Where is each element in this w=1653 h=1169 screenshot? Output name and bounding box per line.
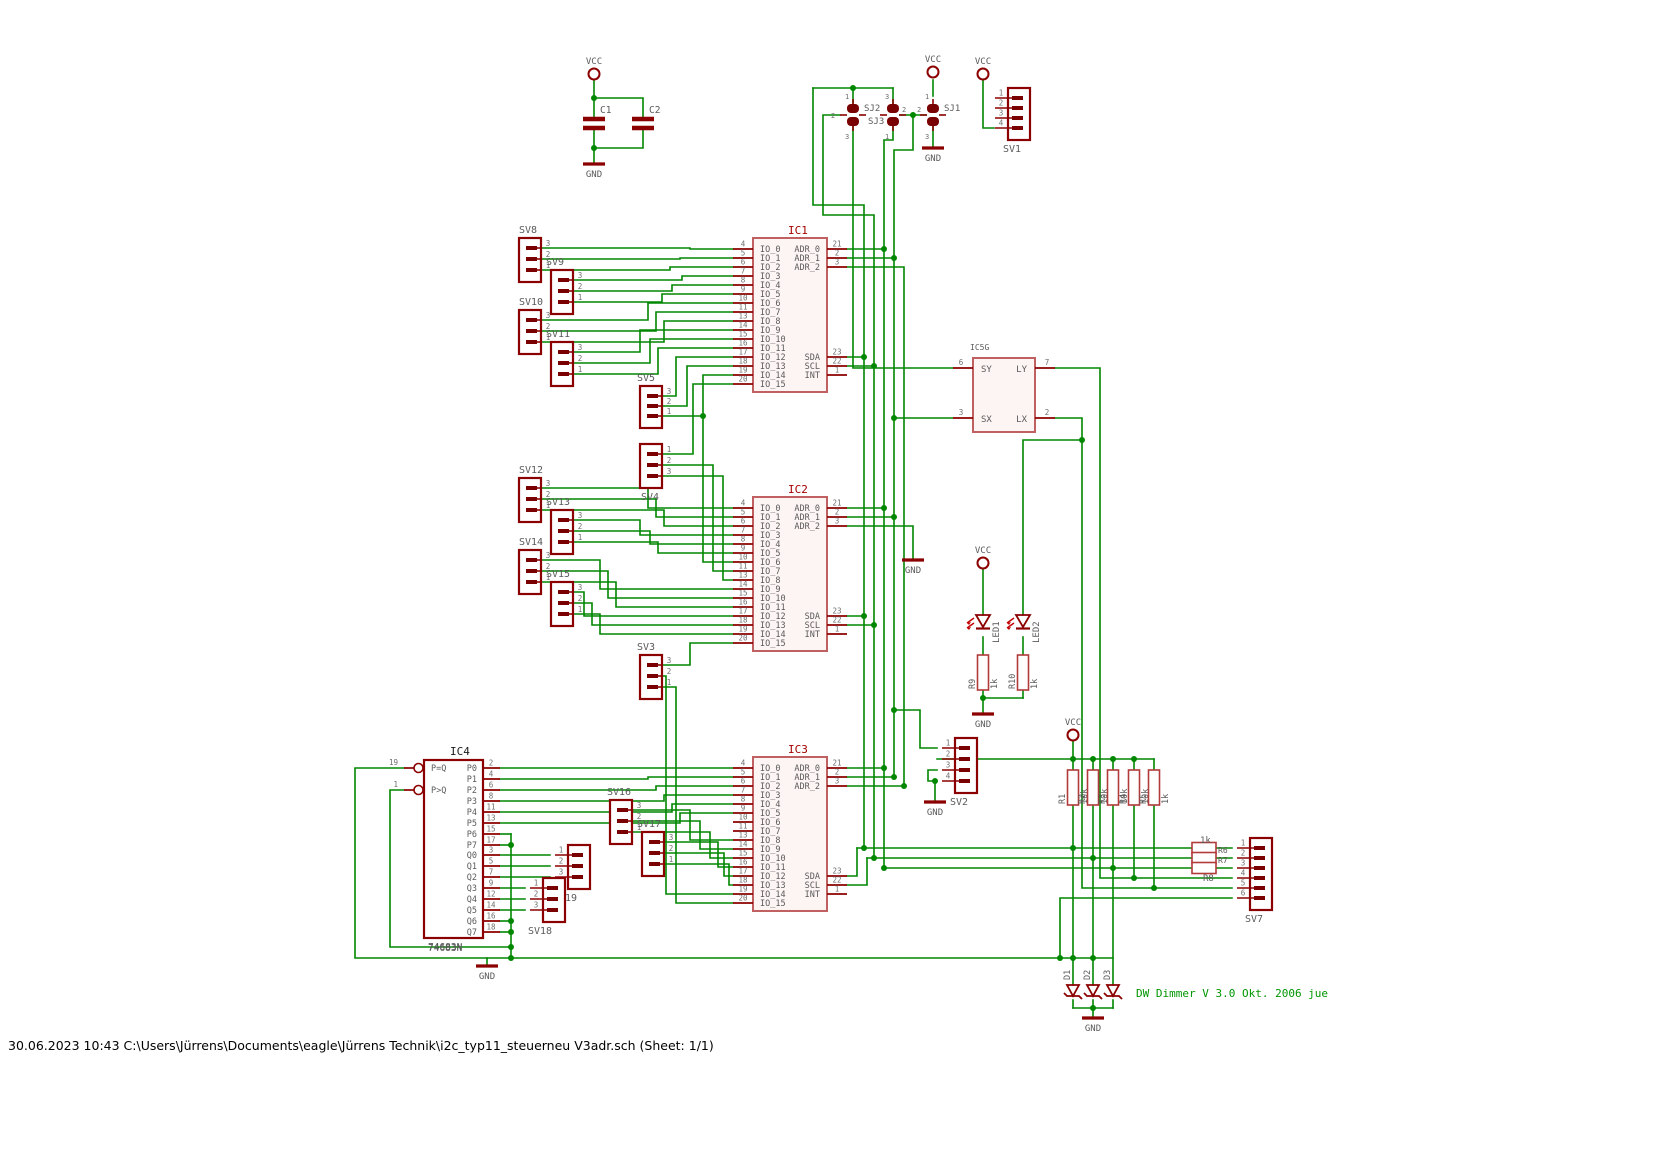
eagle-schematic-window: VCCVCCVCCVCCVCCGNDGNDGNDGNDGNDGNDGNDC1C2… — [0, 0, 1653, 1169]
svg-text:2: 2 — [902, 106, 906, 114]
svg-text:GND: GND — [927, 808, 943, 818]
svg-text:22: 22 — [832, 616, 841, 625]
capacitor-C2: C2 — [632, 105, 660, 128]
svg-text:R7: R7 — [1218, 856, 1228, 865]
svg-text:11: 11 — [738, 562, 747, 571]
gnd-symbol: GND — [1082, 1018, 1104, 1034]
svg-text:SV4: SV4 — [641, 492, 659, 503]
svg-text:SV5: SV5 — [637, 373, 655, 384]
svg-text:SY: SY — [981, 365, 992, 375]
svg-text:15: 15 — [738, 589, 747, 598]
svg-text:VCC: VCC — [586, 57, 602, 67]
svg-text:P3: P3 — [467, 797, 477, 807]
svg-text:1: 1 — [925, 93, 929, 101]
svg-text:SX: SX — [981, 415, 992, 425]
svg-text:2: 2 — [669, 844, 674, 853]
svg-text:8: 8 — [489, 792, 494, 801]
svg-text:3: 3 — [1241, 859, 1246, 868]
svg-text:1: 1 — [667, 678, 672, 687]
svg-text:12: 12 — [486, 890, 495, 899]
svg-text:SV15: SV15 — [546, 569, 570, 580]
svg-text:INT: INT — [805, 630, 820, 640]
vcc-symbol: VCC — [1065, 718, 1081, 741]
svg-text:18: 18 — [738, 876, 748, 885]
svg-text:1: 1 — [845, 93, 849, 101]
svg-text:VCC: VCC — [925, 55, 941, 65]
svg-text:IC1: IC1 — [788, 224, 808, 237]
svg-text:3: 3 — [835, 777, 840, 786]
svg-text:1: 1 — [578, 365, 583, 374]
svg-text:IO_15: IO_15 — [760, 899, 786, 909]
svg-text:13: 13 — [738, 831, 747, 840]
svg-text:1: 1 — [835, 885, 840, 894]
svg-text:ADR_2: ADR_2 — [794, 522, 820, 532]
svg-text:R1: R1 — [1058, 794, 1068, 804]
resistor-R10: R101k — [1008, 655, 1040, 690]
connector-SV12: 321SV12 — [519, 465, 550, 522]
svg-text:19: 19 — [738, 625, 747, 634]
gnd-symbol: GND — [476, 966, 498, 982]
svg-text:INT: INT — [805, 890, 820, 900]
svg-text:19: 19 — [738, 885, 747, 894]
connector-SV15: 321SV15 — [546, 569, 582, 626]
svg-text:11: 11 — [486, 803, 495, 812]
svg-text:3: 3 — [845, 133, 849, 141]
resistor-R5: R51k — [1139, 770, 1171, 805]
svg-text:P6: P6 — [467, 830, 477, 840]
svg-text:1k: 1k — [1030, 679, 1040, 689]
gnd-symbol: GND — [972, 714, 994, 730]
svg-text:SV9: SV9 — [546, 257, 564, 268]
svg-text:Q1: Q1 — [467, 862, 477, 872]
svg-text:8: 8 — [741, 795, 746, 804]
gnd-symbol: GND — [583, 164, 605, 180]
svg-text:9: 9 — [741, 804, 746, 813]
svg-text:3: 3 — [637, 801, 642, 810]
svg-text:14: 14 — [738, 840, 748, 849]
ic-IC2: IC24IO_05IO_16IO_27IO_38IO_49IO_510IO_61… — [733, 483, 847, 651]
ic-IC4: IC474683N19P=Q1P>Q2P04P16P28P311P413P515… — [389, 745, 500, 953]
connector-SV7: 123456SV7 — [1237, 838, 1272, 925]
svg-text:VCC: VCC — [975, 546, 991, 556]
connector-SV11: 321SV11 — [546, 329, 582, 386]
svg-text:2: 2 — [835, 768, 840, 777]
svg-text:21: 21 — [832, 499, 841, 508]
svg-text:16: 16 — [738, 598, 748, 607]
svg-text:15: 15 — [738, 849, 747, 858]
svg-text:R9: R9 — [968, 679, 978, 689]
jumper-SJ2 — [840, 99, 866, 131]
vcc-symbol: VCC — [925, 55, 941, 78]
svg-text:2: 2 — [667, 667, 672, 676]
svg-text:4: 4 — [946, 772, 951, 781]
svg-text:23: 23 — [832, 348, 841, 357]
svg-text:Q4: Q4 — [467, 895, 477, 905]
svg-text:15: 15 — [738, 330, 747, 339]
svg-text:P1: P1 — [467, 775, 477, 785]
connector-SV5: 321SV5 — [637, 373, 671, 428]
resistor-R8 — [1192, 863, 1216, 874]
svg-text:1: 1 — [999, 89, 1004, 98]
svg-text:13: 13 — [738, 312, 747, 321]
svg-text:1: 1 — [578, 533, 583, 542]
svg-text:6: 6 — [741, 777, 746, 786]
svg-text:19: 19 — [389, 758, 398, 767]
svg-text:3: 3 — [578, 583, 583, 592]
svg-text:8: 8 — [741, 276, 746, 285]
svg-text:9: 9 — [741, 285, 746, 294]
svg-text:3: 3 — [835, 517, 840, 526]
svg-text:17: 17 — [738, 607, 747, 616]
svg-text:4: 4 — [741, 240, 746, 249]
svg-text:SV12: SV12 — [519, 465, 543, 476]
svg-text:IC3: IC3 — [788, 743, 808, 756]
svg-text:GND: GND — [905, 566, 921, 576]
svg-text:23: 23 — [832, 607, 841, 616]
svg-text:14: 14 — [738, 321, 748, 330]
svg-text:2: 2 — [559, 857, 564, 866]
diode-D1: D1 — [1063, 970, 1082, 999]
ic-IC1: IC14IO_05IO_16IO_27IO_38IO_49IO_510IO_61… — [733, 224, 847, 392]
svg-text:3: 3 — [546, 479, 551, 488]
svg-text:6: 6 — [489, 781, 494, 790]
svg-text:16: 16 — [738, 339, 748, 348]
connector-SV17: 321SV17 — [637, 819, 673, 876]
svg-text:11: 11 — [738, 303, 747, 312]
svg-text:3: 3 — [667, 467, 672, 476]
svg-text:3: 3 — [546, 311, 551, 320]
svg-text:1: 1 — [885, 133, 889, 141]
svg-text:SV18: SV18 — [528, 926, 552, 937]
connector-SV16: 321SV16 — [607, 787, 641, 844]
svg-text:9: 9 — [741, 544, 746, 553]
connector-SV10: 321SV10 — [519, 297, 550, 354]
svg-text:4: 4 — [489, 770, 494, 779]
svg-text:D1: D1 — [1063, 970, 1073, 980]
svg-text:SV8: SV8 — [519, 225, 537, 236]
connector-SV18: 123SV18 — [528, 878, 565, 937]
svg-text:P>Q: P>Q — [431, 786, 446, 796]
svg-text:1k: 1k — [1200, 836, 1211, 846]
svg-text:2: 2 — [917, 106, 921, 114]
ic-IC5G: IC5G6SY3SX7LY2LX — [953, 343, 1055, 432]
svg-text:6: 6 — [1241, 889, 1246, 898]
svg-text:3: 3 — [489, 846, 494, 855]
capacitor-C1: C1 — [583, 105, 612, 128]
svg-text:2: 2 — [1045, 408, 1050, 417]
connector-SV1: 1234SV1 — [995, 88, 1030, 155]
svg-text:21: 21 — [832, 759, 841, 768]
svg-text:INT: INT — [805, 371, 820, 381]
svg-text:10: 10 — [738, 553, 748, 562]
svg-text:3: 3 — [959, 408, 964, 417]
svg-text:SV11: SV11 — [546, 329, 570, 340]
connector-SV14: 321SV14 — [519, 537, 550, 594]
diode-D3: D3 — [1103, 970, 1122, 999]
svg-text:P2: P2 — [467, 786, 477, 796]
svg-text:IO_15: IO_15 — [760, 380, 786, 390]
svg-text:7: 7 — [489, 868, 494, 877]
svg-text:SV1: SV1 — [1003, 144, 1021, 155]
svg-text:R8: R8 — [1203, 874, 1214, 884]
resistor-R9: R91k — [968, 655, 1000, 690]
svg-text:1: 1 — [835, 625, 840, 634]
svg-text:20: 20 — [738, 894, 748, 903]
jumper-SJ1 — [920, 99, 946, 131]
vcc-symbol: VCC — [586, 57, 602, 80]
status-bar: 30.06.2023 10:43 C:\Users\Jürrens\Docume… — [8, 1038, 1608, 1053]
svg-text:ADR_2: ADR_2 — [794, 263, 820, 273]
svg-text:74683N: 74683N — [428, 943, 463, 954]
svg-text:14: 14 — [486, 901, 496, 910]
svg-text:21: 21 — [832, 240, 841, 249]
svg-text:2: 2 — [578, 282, 583, 291]
svg-text:Q2: Q2 — [467, 873, 477, 883]
schematic-canvas: VCCVCCVCCVCCVCCGNDGNDGNDGNDGNDGNDGNDC1C2… — [0, 0, 1653, 1169]
svg-text:R10: R10 — [1008, 674, 1018, 689]
svg-text:22: 22 — [832, 357, 841, 366]
svg-text:1: 1 — [667, 445, 672, 454]
svg-text:LY: LY — [1016, 365, 1027, 375]
svg-text:17: 17 — [486, 836, 495, 845]
svg-text:GND: GND — [586, 170, 602, 180]
svg-text:4: 4 — [741, 499, 746, 508]
svg-text:3: 3 — [578, 511, 583, 520]
gnd-symbol: GND — [922, 148, 944, 164]
svg-text:2: 2 — [534, 890, 539, 899]
svg-text:3: 3 — [667, 387, 672, 396]
svg-text:C1: C1 — [600, 105, 612, 116]
svg-text:3: 3 — [925, 133, 929, 141]
svg-text:SV17: SV17 — [637, 819, 661, 830]
svg-text:P5: P5 — [467, 819, 477, 829]
svg-text:5: 5 — [489, 857, 494, 866]
svg-text:2: 2 — [667, 456, 672, 465]
svg-text:1k: 1k — [1161, 794, 1171, 804]
svg-text:R5: R5 — [1139, 794, 1149, 804]
svg-text:SV10: SV10 — [519, 297, 543, 308]
svg-text:9: 9 — [489, 879, 494, 888]
svg-text:3: 3 — [835, 258, 840, 267]
svg-text:LED1: LED1 — [992, 621, 1002, 643]
svg-text:SV14: SV14 — [519, 537, 543, 548]
svg-text:R4: R4 — [1119, 794, 1129, 804]
svg-text:23: 23 — [832, 867, 841, 876]
svg-text:13: 13 — [738, 571, 747, 580]
svg-text:SJ1: SJ1 — [944, 104, 960, 114]
svg-text:19: 19 — [738, 366, 747, 375]
svg-text:14: 14 — [738, 580, 748, 589]
svg-text:16: 16 — [486, 912, 496, 921]
svg-text:GND: GND — [1085, 1024, 1101, 1034]
svg-text:3: 3 — [546, 239, 551, 248]
svg-text:5: 5 — [741, 508, 746, 517]
note-text: DW Dimmer V 3.0 Okt. 2006 jue — [1136, 987, 1328, 1000]
svg-text:11: 11 — [738, 822, 747, 831]
svg-text:2: 2 — [489, 759, 494, 768]
svg-text:10: 10 — [738, 813, 748, 822]
svg-text:1: 1 — [835, 366, 840, 375]
svg-text:3: 3 — [885, 93, 889, 101]
svg-text:1: 1 — [669, 855, 674, 864]
svg-text:3: 3 — [667, 656, 672, 665]
svg-text:ADR_2: ADR_2 — [794, 782, 820, 792]
svg-text:2: 2 — [831, 112, 835, 120]
svg-text:D2: D2 — [1083, 970, 1093, 980]
svg-text:3: 3 — [946, 761, 951, 770]
svg-text:D3: D3 — [1103, 970, 1113, 980]
svg-text:22: 22 — [832, 876, 841, 885]
svg-text:1k: 1k — [990, 679, 1000, 689]
svg-text:1: 1 — [1241, 839, 1246, 848]
svg-text:4: 4 — [1241, 869, 1246, 878]
svg-text:3: 3 — [546, 551, 551, 560]
svg-text:2: 2 — [578, 522, 583, 531]
connector-SV4: 123SV4 — [640, 444, 671, 503]
svg-text:2: 2 — [1241, 849, 1246, 858]
svg-text:IO_15: IO_15 — [760, 639, 786, 649]
svg-text:5: 5 — [1241, 879, 1246, 888]
svg-text:6: 6 — [959, 358, 964, 367]
svg-text:P0: P0 — [467, 764, 477, 774]
svg-text:1: 1 — [559, 846, 564, 855]
svg-text:18: 18 — [486, 923, 496, 932]
svg-text:IC5G: IC5G — [970, 343, 989, 352]
svg-text:3: 3 — [999, 109, 1004, 118]
svg-text:3: 3 — [578, 343, 583, 352]
connector-SV2: 1234SV2 — [942, 738, 977, 808]
svg-text:1: 1 — [393, 780, 398, 789]
svg-text:GND: GND — [925, 154, 941, 164]
svg-text:2: 2 — [578, 594, 583, 603]
svg-text:2: 2 — [578, 354, 583, 363]
svg-text:Q0: Q0 — [467, 851, 477, 861]
svg-text:18: 18 — [738, 357, 748, 366]
svg-text:4: 4 — [741, 759, 746, 768]
svg-text:1: 1 — [578, 293, 583, 302]
svg-text:10: 10 — [738, 294, 748, 303]
svg-text:2: 2 — [835, 249, 840, 258]
svg-text:P=Q: P=Q — [431, 764, 446, 774]
svg-text:7: 7 — [741, 267, 746, 276]
gnd-symbol: GND — [902, 560, 924, 576]
svg-text:1: 1 — [534, 879, 539, 888]
svg-text:5: 5 — [741, 768, 746, 777]
svg-text:R2: R2 — [1078, 794, 1088, 804]
diode-D2: D2 — [1083, 970, 1102, 999]
svg-text:8: 8 — [741, 535, 746, 544]
svg-text:GND: GND — [975, 720, 991, 730]
svg-text:7: 7 — [741, 526, 746, 535]
svg-text:4: 4 — [999, 119, 1004, 128]
svg-text:LX: LX — [1016, 415, 1027, 425]
svg-text:17: 17 — [738, 867, 747, 876]
svg-text:3: 3 — [534, 901, 539, 910]
led-LED1: LED1 — [967, 615, 1002, 643]
connector-SV8: 321SV8 — [519, 225, 550, 282]
svg-text:SV13: SV13 — [546, 497, 570, 508]
svg-text:SV7: SV7 — [1245, 914, 1263, 925]
svg-text:SV2: SV2 — [950, 797, 968, 808]
svg-text:Q7: Q7 — [467, 928, 477, 938]
ic-IC3: IC34IO_05IO_16IO_27IO_38IO_49IO_510IO_61… — [733, 743, 847, 911]
svg-text:2: 2 — [835, 508, 840, 517]
svg-text:18: 18 — [738, 616, 748, 625]
svg-text:3: 3 — [559, 868, 564, 877]
gnd-symbol: GND — [924, 802, 946, 818]
svg-text:SV16: SV16 — [607, 787, 631, 798]
svg-text:C2: C2 — [649, 105, 660, 116]
svg-text:17: 17 — [738, 348, 747, 357]
vcc-symbol: VCC — [975, 546, 991, 569]
svg-text:SV3: SV3 — [637, 642, 655, 653]
svg-text:2: 2 — [999, 99, 1004, 108]
svg-text:VCC: VCC — [1065, 718, 1081, 728]
svg-text:2: 2 — [946, 750, 951, 759]
svg-text:Q5: Q5 — [467, 906, 477, 916]
svg-text:1: 1 — [946, 739, 951, 748]
svg-text:SJ3: SJ3 — [868, 117, 884, 127]
connector-SV9: 321SV9 — [546, 257, 582, 314]
svg-text:IC4: IC4 — [450, 745, 470, 758]
svg-text:SJ2: SJ2 — [864, 104, 880, 114]
svg-text:LED2: LED2 — [1032, 621, 1042, 643]
svg-text:1: 1 — [667, 407, 672, 416]
svg-text:GND: GND — [479, 972, 495, 982]
svg-text:Q3: Q3 — [467, 884, 477, 894]
svg-text:16: 16 — [738, 858, 748, 867]
vcc-symbol: VCC — [975, 57, 991, 80]
led-LED2: LED2 — [1007, 615, 1042, 643]
svg-text:15: 15 — [486, 825, 495, 834]
svg-text:20: 20 — [738, 634, 748, 643]
connector-SV13: 321SV13 — [546, 497, 582, 554]
svg-text:7: 7 — [1045, 358, 1050, 367]
svg-text:13: 13 — [486, 814, 495, 823]
svg-text:R3: R3 — [1098, 794, 1108, 804]
svg-text:P7: P7 — [467, 841, 477, 851]
svg-text:5: 5 — [741, 249, 746, 258]
svg-text:IC2: IC2 — [788, 483, 808, 496]
svg-text:P4: P4 — [467, 808, 477, 818]
svg-text:Q6: Q6 — [467, 917, 477, 927]
svg-text:20: 20 — [738, 375, 748, 384]
svg-text:1: 1 — [578, 605, 583, 614]
svg-text:3: 3 — [669, 833, 674, 842]
svg-text:7: 7 — [741, 786, 746, 795]
svg-text:6: 6 — [741, 517, 746, 526]
svg-text:VCC: VCC — [975, 57, 991, 67]
svg-text:DW Dimmer V 3.0 Okt. 2006 jue: DW Dimmer V 3.0 Okt. 2006 jue — [1136, 987, 1328, 1000]
svg-text:2: 2 — [667, 397, 672, 406]
svg-text:6: 6 — [741, 258, 746, 267]
svg-text:R6: R6 — [1218, 846, 1228, 855]
svg-text:3: 3 — [578, 271, 583, 280]
